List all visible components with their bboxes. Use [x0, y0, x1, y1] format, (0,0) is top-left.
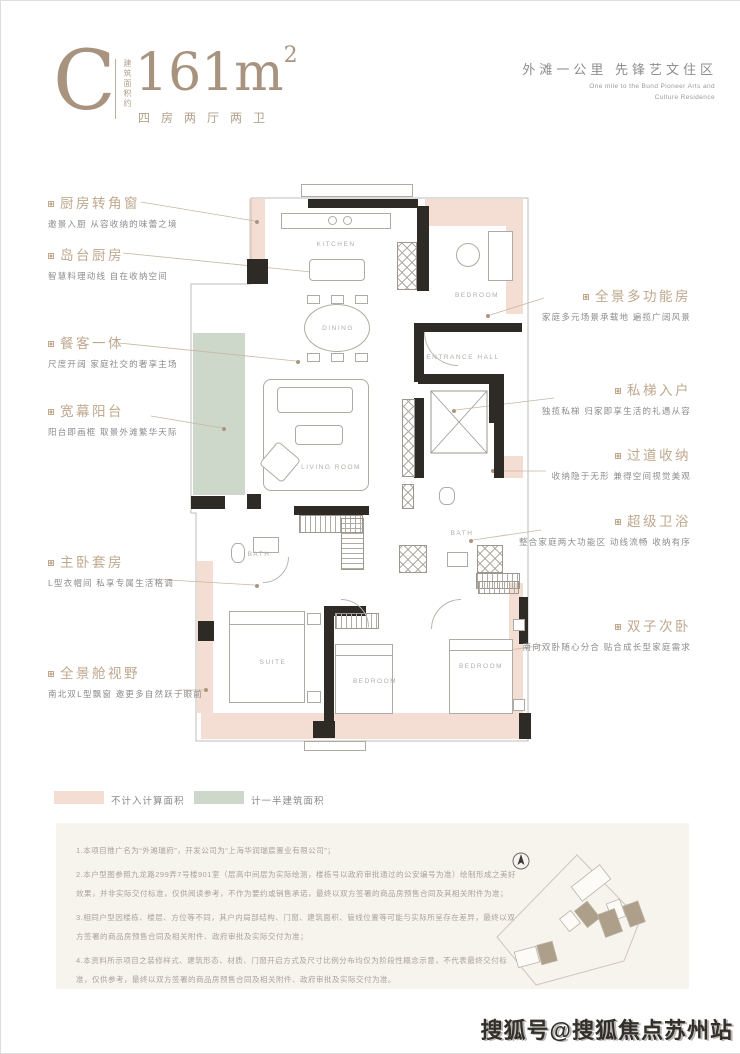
nightstand	[307, 691, 321, 703]
bullet-icon	[615, 519, 621, 525]
toilet	[231, 543, 245, 563]
bullet-icon	[48, 201, 54, 207]
pink-area	[201, 713, 521, 739]
annotation-desc: 独揽私梯 归家即享生活的礼遇从容	[542, 405, 691, 417]
wall-segment	[417, 206, 429, 291]
pink-area	[425, 199, 523, 226]
wardrobe-hatch	[478, 581, 519, 594]
annotation-title: 超级卫浴	[627, 514, 691, 530]
dining-chair	[307, 295, 320, 304]
annotation-wide-balcony: 宽幕阳台 阳台即画框 取景外滩繁华天际	[48, 400, 178, 438]
annotation-desc: 尺度开阔 家庭社交的奢享主场	[48, 358, 178, 370]
legend-swatch-pink	[54, 791, 104, 804]
room-label-living-room: LIVING ROOM	[301, 464, 361, 471]
annotation-private-elevator: 私梯入户 独揽私梯 归家即享生活的礼遇从容	[542, 379, 691, 417]
note-3: 3.相同户型因楼栋、楼层、方位等不同，其户内局部结构、门窗、建筑面积、管线位置等…	[76, 908, 521, 946]
window-sill	[304, 741, 366, 751]
closet-hatch	[402, 399, 415, 477]
annotation-desc: L型衣帽间 私享专属生活格调	[48, 577, 174, 589]
watermark: 搜狐号@搜狐焦点苏州站	[481, 1013, 733, 1045]
room-layout-label: 四房两厅两卫	[138, 109, 276, 126]
room-label-entrance-hall: ENTRANCE HALL	[426, 354, 499, 361]
bullet-icon	[615, 453, 621, 459]
annotation-desc: 家庭多元场景承载地 遍揽广阔风景	[542, 311, 691, 323]
site-map	[491, 831, 681, 989]
wall-segment	[198, 621, 214, 641]
header-divider	[115, 59, 116, 119]
room-label-kitchen: KITCHEN	[316, 241, 355, 248]
bullet-icon	[583, 294, 589, 300]
wall-segment	[418, 374, 504, 384]
floorplan-page: C 建筑面积约 161m2 四房两厅两卫 外滩一公里 先锋艺文住区 One mi…	[0, 0, 740, 1054]
annotation-hallway-storage: 过道收纳 收纳隐于无形 兼得空间视觉美观	[552, 444, 691, 482]
room-label-bedroom-1: BEDROOM	[455, 292, 499, 299]
annotation-title: 全景多功能房	[595, 289, 691, 305]
wall-segment	[324, 606, 334, 724]
wall-segment	[519, 713, 531, 739]
annotation-desc: 整合家庭两大功能区 动线流畅 收纳有序	[519, 536, 691, 548]
room-label-bedroom-3: BEDROOM	[459, 663, 503, 670]
cabinet-hatch	[397, 242, 417, 290]
bed-pillow	[449, 639, 513, 651]
pink-area	[504, 456, 523, 478]
annotation-desc: 收纳隐于无形 兼得空间视觉美观	[552, 470, 691, 482]
wall-segment	[313, 721, 335, 738]
kitchen-island	[309, 259, 365, 281]
stove-burner	[343, 216, 352, 225]
annotation-title: 双子次卧	[627, 619, 691, 635]
room-label-dining: DINING	[322, 325, 354, 332]
area-value: 161m2	[135, 45, 298, 99]
dining-chair	[331, 353, 344, 362]
annotation-desc: 南北双L型飘窗 邀更多自然跃于眼前	[48, 688, 203, 700]
annotation-dining-living: 餐客一体 尺度开阔 家庭社交的奢享主场	[48, 332, 178, 370]
wall-segment	[294, 506, 369, 515]
wall-segment	[191, 496, 225, 509]
chair	[456, 243, 480, 267]
sofa	[277, 387, 353, 413]
nightstand	[513, 699, 525, 711]
room-label-suite: SUITE	[260, 659, 287, 666]
bullet-icon	[48, 341, 54, 347]
dining-chair	[307, 353, 320, 362]
note-2: 2.本户型图参照九龙路299弄7号楼901室（层高中间层为实际绘测，楼栋号以政府…	[76, 865, 521, 903]
wall-segment	[247, 259, 268, 284]
dining-chair	[331, 295, 344, 304]
legend-label: 计一半建筑面积	[251, 793, 325, 807]
annotation-desc: 阳台即画框 取景外滩繁华天际	[48, 426, 178, 438]
bed-pillow	[335, 644, 393, 656]
project-slogan-cn: 外滩一公里 先锋艺文住区	[522, 59, 717, 78]
wall-segment	[494, 384, 504, 478]
door-arc	[341, 599, 369, 627]
disclaimer-notes: 1.本项目推广名为“外滩瑞府”，开发公司为“上海华润瑞宸置业有限公司”； 2.本…	[76, 841, 521, 994]
closet-hatch	[402, 484, 414, 509]
ledge	[301, 184, 413, 197]
annotation-desc: 南向双卧随心分合 贴合成长型家庭需求	[523, 641, 691, 653]
note-4: 4.本资料所示项目之装修样式、建筑形态、材质、门窗开启方式及尺寸比例分布均仅为阶…	[76, 951, 521, 989]
annotation-super-bathroom: 超级卫浴 整合家庭两大功能区 动线流畅 收纳有序	[519, 510, 691, 548]
annotation-panorama-view: 全景舱视野 南北双L型飘窗 邀更多自然跃于眼前	[48, 662, 203, 700]
annotation-desc: 智慧料理动线 自在收纳空间	[48, 270, 168, 282]
bed-pillow	[229, 611, 305, 625]
bullet-icon	[615, 624, 621, 630]
stove-burner	[328, 216, 337, 225]
balcony-green-area	[193, 333, 245, 495]
annotation-title: 餐客一体	[60, 336, 124, 352]
note-1: 1.本项目推广名为“外滩瑞府”，开发公司为“上海华润瑞宸置业有限公司”；	[76, 841, 521, 860]
annotation-title: 宽幕阳台	[60, 404, 124, 420]
room-label-bedroom-2: BEDROOM	[353, 678, 397, 685]
annotation-title: 岛台厨房	[60, 248, 124, 264]
slogan-en-line2: Culture Residence	[589, 92, 715, 103]
coffee-table	[295, 425, 343, 445]
dining-chair	[355, 295, 368, 304]
area-prefix-label: 建筑面积约	[122, 59, 133, 109]
annotation-desc: 邀景入厨 从容收纳的味蕾之境	[48, 218, 178, 230]
closet-hatch	[399, 545, 427, 573]
sink	[447, 552, 468, 567]
bullet-icon	[48, 253, 54, 259]
bullet-icon	[615, 388, 621, 394]
legend-swatch-green	[194, 791, 244, 804]
annotation-kitchen-corner-window: 厨房转角窗 邀景入厨 从容收纳的味蕾之境	[48, 192, 178, 230]
disclaimer-box: 1.本项目推广名为“外滩瑞府”，开发公司为“上海华润瑞宸置业有限公司”； 2.本…	[56, 823, 689, 989]
annotation-title: 全景舱视野	[60, 666, 140, 682]
room-label-bath-right: BATH	[451, 530, 474, 537]
wall-segment	[247, 494, 261, 509]
area-number: 161m	[135, 43, 284, 103]
desk	[488, 231, 513, 281]
bullet-icon	[48, 671, 54, 677]
wall-segment	[414, 323, 522, 332]
annotation-title: 私梯入户	[627, 383, 691, 399]
annotation-title: 厨房转角窗	[60, 196, 140, 212]
room-label-bath-left: BATH	[248, 551, 271, 558]
closet-hatch	[477, 545, 503, 573]
project-slogan-en: One mile to the Bund Pioneer Arts and Cu…	[589, 81, 715, 103]
unit-type-letter: C	[53, 41, 116, 123]
wall-segment	[308, 199, 418, 208]
annotation-multifunction-room: 全景多功能房 家庭多元场景承载地 遍揽广阔风景	[542, 285, 691, 323]
area-superscript: 2	[284, 43, 298, 68]
slogan-en-line1: One mile to the Bund Pioneer Arts and	[589, 81, 715, 92]
bullet-icon	[48, 560, 54, 566]
annotation-title: 主卧套房	[60, 555, 124, 571]
wall-segment	[414, 398, 424, 478]
annotation-twin-bedrooms: 双子次卧 南向双卧随心分合 贴合成长型家庭需求	[523, 615, 691, 653]
door-arc	[263, 557, 289, 583]
nightstand	[307, 613, 321, 625]
annotation-island-kitchen: 岛台厨房 智慧料理动线 自在收纳空间	[48, 244, 168, 282]
toilet	[439, 487, 455, 505]
pink-area	[249, 199, 265, 259]
annotation-master-suite: 主卧套房 L型衣帽间 私享专属生活格调	[48, 551, 174, 589]
stair-hatch	[341, 518, 364, 570]
bullet-icon	[48, 409, 54, 415]
dining-chair	[355, 353, 368, 362]
door-arc	[431, 599, 461, 629]
legend-label: 不计入计算面积	[111, 793, 185, 807]
annotation-title: 过道收纳	[627, 448, 691, 464]
